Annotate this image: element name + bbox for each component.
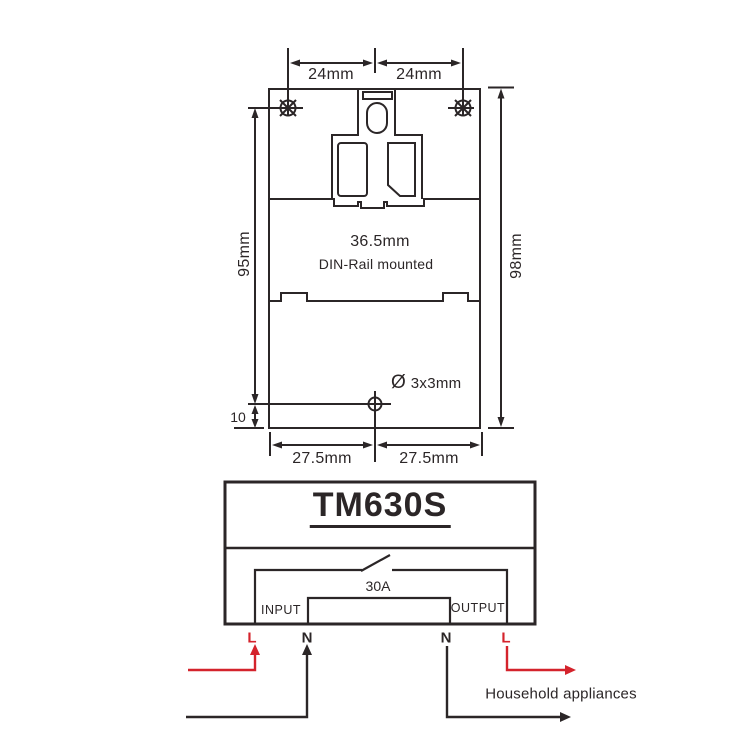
hole-diameter-callout: Ø 3x3mm xyxy=(391,372,461,394)
diagram-linework xyxy=(0,0,750,750)
dim-label-bottom-left: 27.5mm xyxy=(292,451,352,467)
wire-live-input xyxy=(188,644,260,670)
model-title: TM630S xyxy=(310,488,451,528)
terminal-neutral-in: N xyxy=(302,631,313,646)
terminal-live-out: L xyxy=(501,631,510,646)
hole-diameter-value: 3x3mm xyxy=(411,375,462,392)
case-groove-line xyxy=(269,293,480,301)
input-label: INPUT xyxy=(261,604,301,617)
contact-rating-label: 30A xyxy=(366,579,391,593)
wire-live-output xyxy=(507,646,576,675)
load-label: Household appliances xyxy=(485,687,637,702)
mount-hole-right-icon xyxy=(448,48,474,116)
dim-label-top-right: 24mm xyxy=(396,67,442,83)
din-rail-clip xyxy=(269,89,480,208)
mount-type-note: DIN-Rail mounted xyxy=(319,257,433,271)
technical-diagram-page: 24mm 24mm 95mm 98mm 36.5mm DIN-Rail moun… xyxy=(0,0,750,750)
terminal-neutral-out: N xyxy=(441,631,452,646)
wire-neutral-output xyxy=(447,646,571,722)
dim-label-body-width: 36.5mm xyxy=(350,234,410,250)
terminal-live-in: L xyxy=(247,631,256,646)
dim-label-hole-height: 95mm xyxy=(237,231,253,277)
dim-label-bottom-right: 27.5mm xyxy=(399,451,459,467)
wire-neutral-input xyxy=(186,644,312,717)
output-label: OUTPUT xyxy=(451,602,505,615)
diameter-symbol: Ø xyxy=(391,372,406,394)
dim-label-top-left: 24mm xyxy=(308,67,354,83)
dim-label-body-height: 98mm xyxy=(509,233,525,279)
dim-label-bottom-offset: 10 xyxy=(230,410,246,424)
mount-hole-left-icon xyxy=(248,48,303,116)
